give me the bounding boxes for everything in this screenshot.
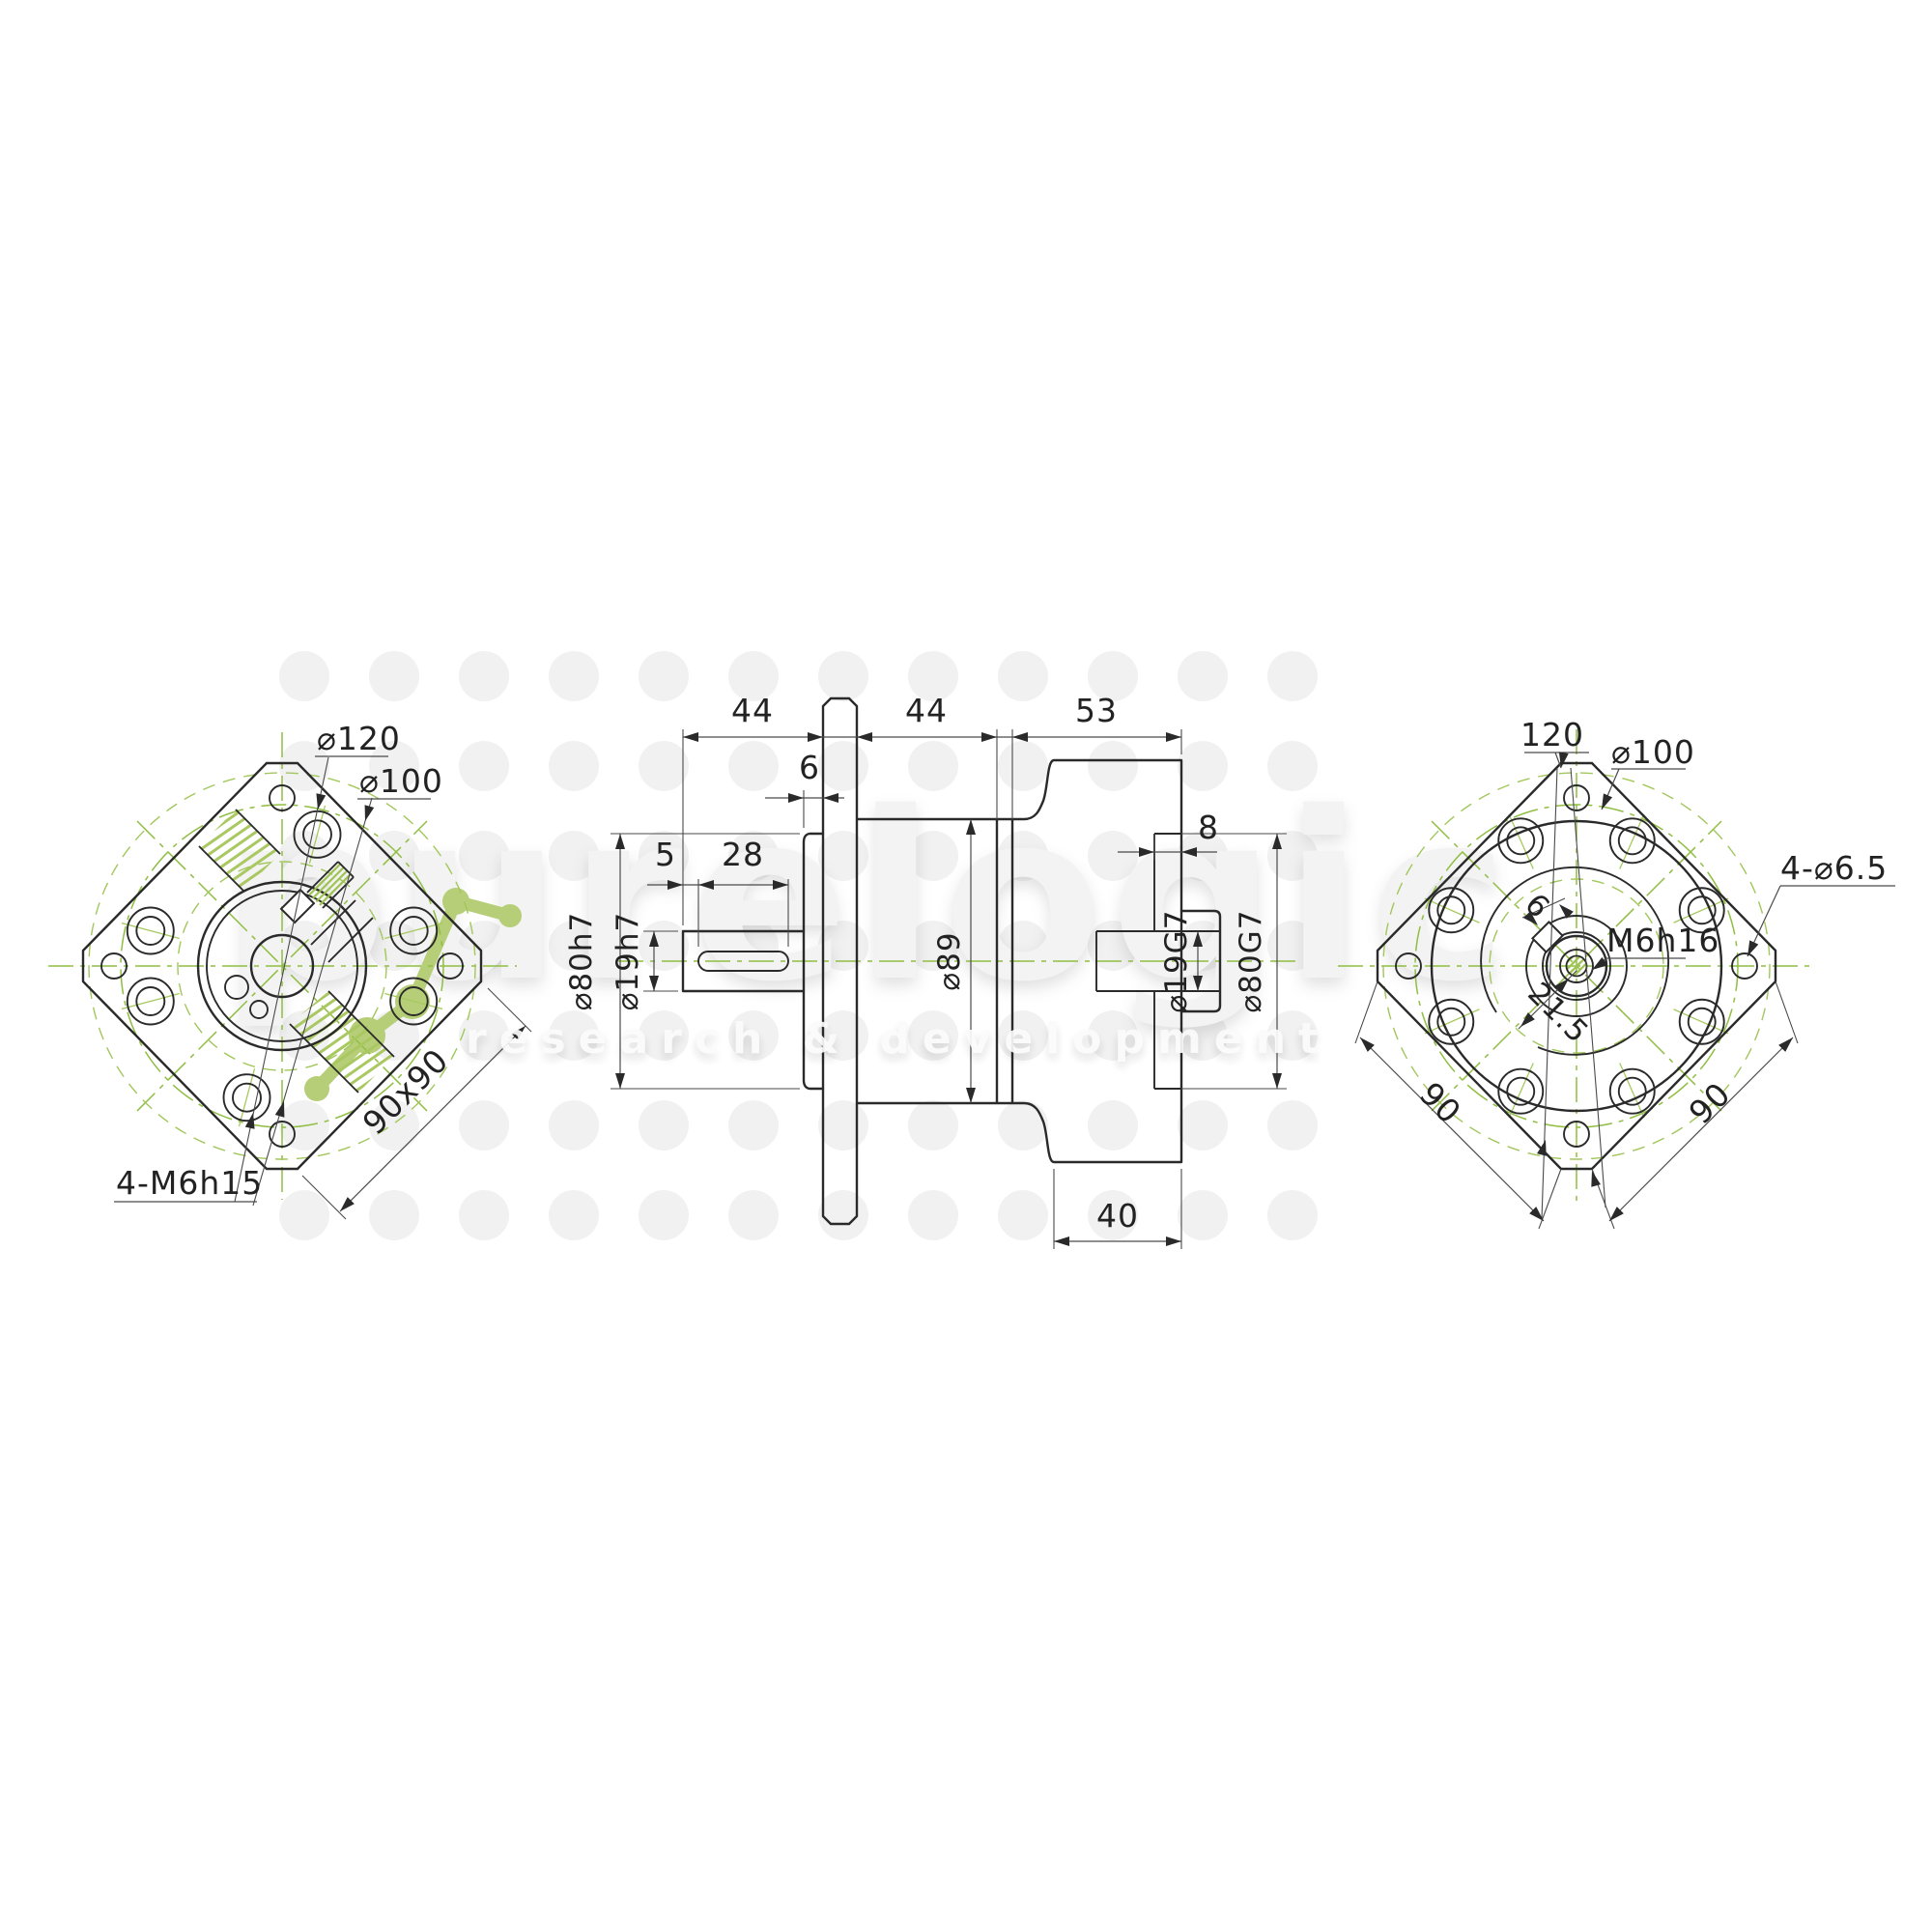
dim-bell-length-label: 53 xyxy=(1075,692,1118,729)
dim-keyway-offset-label: 5 xyxy=(655,836,676,873)
dim-bolt-circle-100-label: ⌀100 xyxy=(359,762,443,800)
dim-pilot-depth-label: 6 xyxy=(799,749,820,786)
dim-recess-depth-label: 8 xyxy=(1198,809,1219,846)
watermark-tagline-text: research & development xyxy=(466,1014,1331,1064)
dim-side-left-label: 90 xyxy=(1412,1075,1469,1132)
dim-keyway-length-label: 28 xyxy=(722,836,764,873)
dim-recess-diameter-label: ⌀80G7 xyxy=(1234,910,1268,1013)
dim-keyway-width-label: 6 xyxy=(1518,887,1556,925)
dim-output-bore-diameter-label: ⌀19G7 xyxy=(1159,910,1194,1013)
dim-center-thread-label: M6h16 xyxy=(1606,922,1719,959)
dim-flange-width-label: 120 xyxy=(1520,716,1584,753)
dim-tapped-holes-label: 4-M6h15 xyxy=(116,1164,263,1202)
drawing-canvas: purelogic xyxy=(0,0,1932,1932)
dim-body-length-label: 44 xyxy=(905,692,948,729)
dim-output-bolt-circle-label: ⌀100 xyxy=(1611,733,1695,771)
dim-pilot-diameter-label: ⌀80h7 xyxy=(564,912,599,1010)
dim-mount-holes-label: 4-⌀6.5 xyxy=(1780,849,1888,887)
dim-body-diameter-label: ⌀89 xyxy=(932,931,967,990)
dim-shaft-diameter-label: ⌀19h7 xyxy=(611,912,645,1010)
dim-shaft-length-label: 44 xyxy=(731,692,774,729)
dim-bolt-circle-120-label: ⌀120 xyxy=(317,720,401,757)
dim-hub-length-label: 40 xyxy=(1096,1197,1139,1235)
technical-drawing: purelogic xyxy=(0,0,1932,1932)
